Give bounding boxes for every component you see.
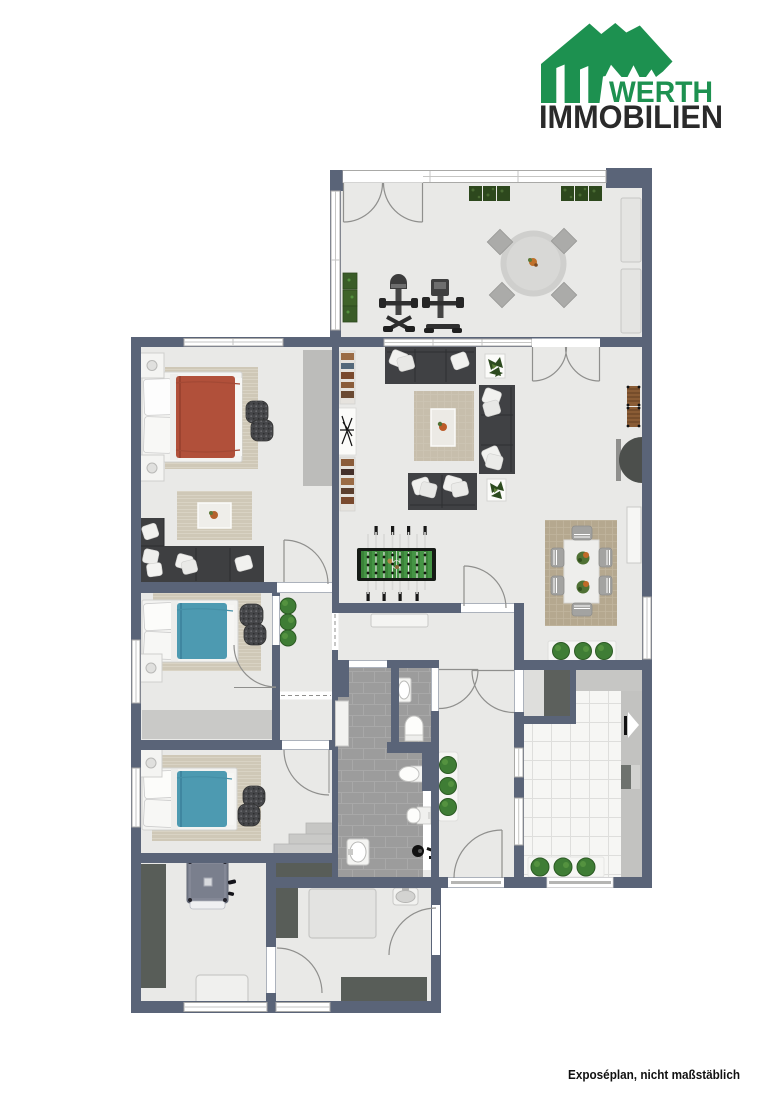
svg-text:IMMOBILIEN: IMMOBILIEN	[539, 99, 723, 135]
svg-text:Exposéplan, nicht maßstäblich: Exposéplan, nicht maßstäblich	[568, 1068, 740, 1082]
